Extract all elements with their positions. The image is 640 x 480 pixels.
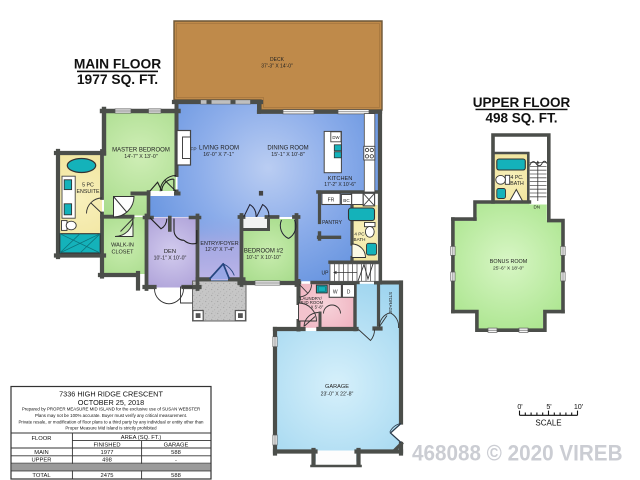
svg-text:498: 498 bbox=[102, 457, 112, 463]
svg-text:588: 588 bbox=[171, 473, 181, 479]
svg-text:MASTER BEDROOM: MASTER BEDROOM bbox=[112, 148, 170, 154]
svg-text:LIVING ROOM: LIVING ROOM bbox=[199, 146, 239, 152]
svg-text:1977: 1977 bbox=[101, 450, 114, 456]
svg-text:TOTAL: TOTAL bbox=[32, 473, 51, 479]
svg-text:2475: 2475 bbox=[101, 473, 114, 479]
svg-text:GARAGE: GARAGE bbox=[164, 443, 189, 449]
svg-text:UPPER: UPPER bbox=[32, 457, 52, 463]
svg-text:498 SQ. FT.: 498 SQ. FT. bbox=[485, 111, 557, 126]
svg-text:12'-0" X 7'-4": 12'-0" X 7'-4" bbox=[205, 247, 234, 253]
svg-text:25'-6" X 18'-0": 25'-6" X 18'-0" bbox=[493, 266, 524, 272]
svg-text:FLOOR: FLOOR bbox=[32, 436, 52, 442]
svg-text:17'-2" X 10'-6": 17'-2" X 10'-6" bbox=[324, 182, 356, 188]
svg-text:MAIN FLOOR: MAIN FLOOR bbox=[74, 57, 161, 72]
svg-text:ENSUITE: ENSUITE bbox=[77, 189, 100, 195]
svg-text:37'-3" X 14'-0": 37'-3" X 14'-0" bbox=[261, 63, 293, 69]
svg-text:STORAGE: STORAGE bbox=[388, 292, 393, 314]
svg-text:15'-1" X 10'-8": 15'-1" X 10'-8" bbox=[271, 152, 305, 158]
svg-text:Private resale, or modificatio: Private resale, or modification of floor… bbox=[19, 419, 205, 424]
svg-text:Prepared by PROPER MEASURE MID: Prepared by PROPER MEASURE MID ISLAND fo… bbox=[22, 407, 200, 412]
svg-text:-: - bbox=[175, 457, 177, 463]
svg-text:OCTOBER 25, 2018: OCTOBER 25, 2018 bbox=[78, 398, 144, 407]
svg-text:1977 SQ. FT.: 1977 SQ. FT. bbox=[77, 72, 158, 87]
svg-text:DINING ROOM: DINING ROOM bbox=[267, 146, 308, 152]
svg-text:23'-0" X 22'-8": 23'-0" X 22'-8" bbox=[321, 392, 354, 398]
svg-text:10'-1" X 10'-10": 10'-1" X 10'-10" bbox=[246, 255, 281, 261]
svg-text:16'-0" X 7'-1": 16'-0" X 7'-1" bbox=[203, 152, 234, 158]
svg-text:W: W bbox=[333, 290, 338, 296]
svg-text:14'-7" X 13'-0": 14'-7" X 13'-0" bbox=[124, 154, 158, 160]
svg-text:Proper Measure Mid Island is s: Proper Measure Mid Island is strictly pr… bbox=[65, 426, 157, 431]
svg-text:WALK-IN: WALK-IN bbox=[111, 243, 134, 249]
svg-text:BATH: BATH bbox=[510, 181, 524, 187]
svg-text:SCALE: SCALE bbox=[535, 419, 561, 428]
svg-text:10': 10' bbox=[574, 402, 584, 411]
svg-text:ENTRY/FOYER: ENTRY/FOYER bbox=[200, 241, 238, 247]
svg-text:PANTRY: PANTRY bbox=[322, 220, 342, 226]
svg-text:10'-1" X 10'-0": 10'-1" X 10'-0" bbox=[154, 255, 187, 261]
svg-text:FINISHED: FINISHED bbox=[93, 443, 120, 449]
svg-text:BC: BC bbox=[343, 198, 350, 203]
svg-text:CLOSET: CLOSET bbox=[111, 250, 134, 256]
svg-text:MAIN: MAIN bbox=[34, 450, 49, 456]
svg-text:GARAGE: GARAGE bbox=[325, 384, 349, 390]
svg-text:5': 5' bbox=[546, 402, 552, 411]
svg-text:FP: FP bbox=[190, 147, 196, 153]
svg-text:Plans may not be 100% accurate: Plans may not be 100% accurate. Buyer mu… bbox=[35, 413, 187, 418]
svg-text:FR: FR bbox=[328, 197, 335, 203]
svg-text:4 PC: 4 PC bbox=[354, 232, 365, 237]
svg-text:DW: DW bbox=[332, 135, 340, 140]
svg-text:BONUS ROOM: BONUS ROOM bbox=[490, 259, 528, 265]
svg-text:DECK: DECK bbox=[270, 57, 285, 63]
svg-text:UPPER FLOOR: UPPER FLOOR bbox=[473, 95, 571, 110]
svg-text:BATH: BATH bbox=[354, 237, 366, 242]
svg-text:D: D bbox=[347, 290, 351, 296]
svg-text:468088 © 2020 VIREB: 468088 © 2020 VIREB bbox=[412, 441, 623, 466]
svg-text:588: 588 bbox=[171, 450, 181, 456]
svg-text:0': 0' bbox=[517, 402, 523, 411]
svg-text:DEN: DEN bbox=[164, 249, 176, 255]
svg-text:5 PC: 5 PC bbox=[82, 182, 94, 188]
svg-text:UP: UP bbox=[322, 271, 330, 277]
svg-text:BEDROOM #2: BEDROOM #2 bbox=[244, 249, 284, 255]
svg-text:AREA (SQ. FT.): AREA (SQ. FT.) bbox=[121, 435, 162, 441]
svg-text:DN: DN bbox=[533, 205, 540, 210]
